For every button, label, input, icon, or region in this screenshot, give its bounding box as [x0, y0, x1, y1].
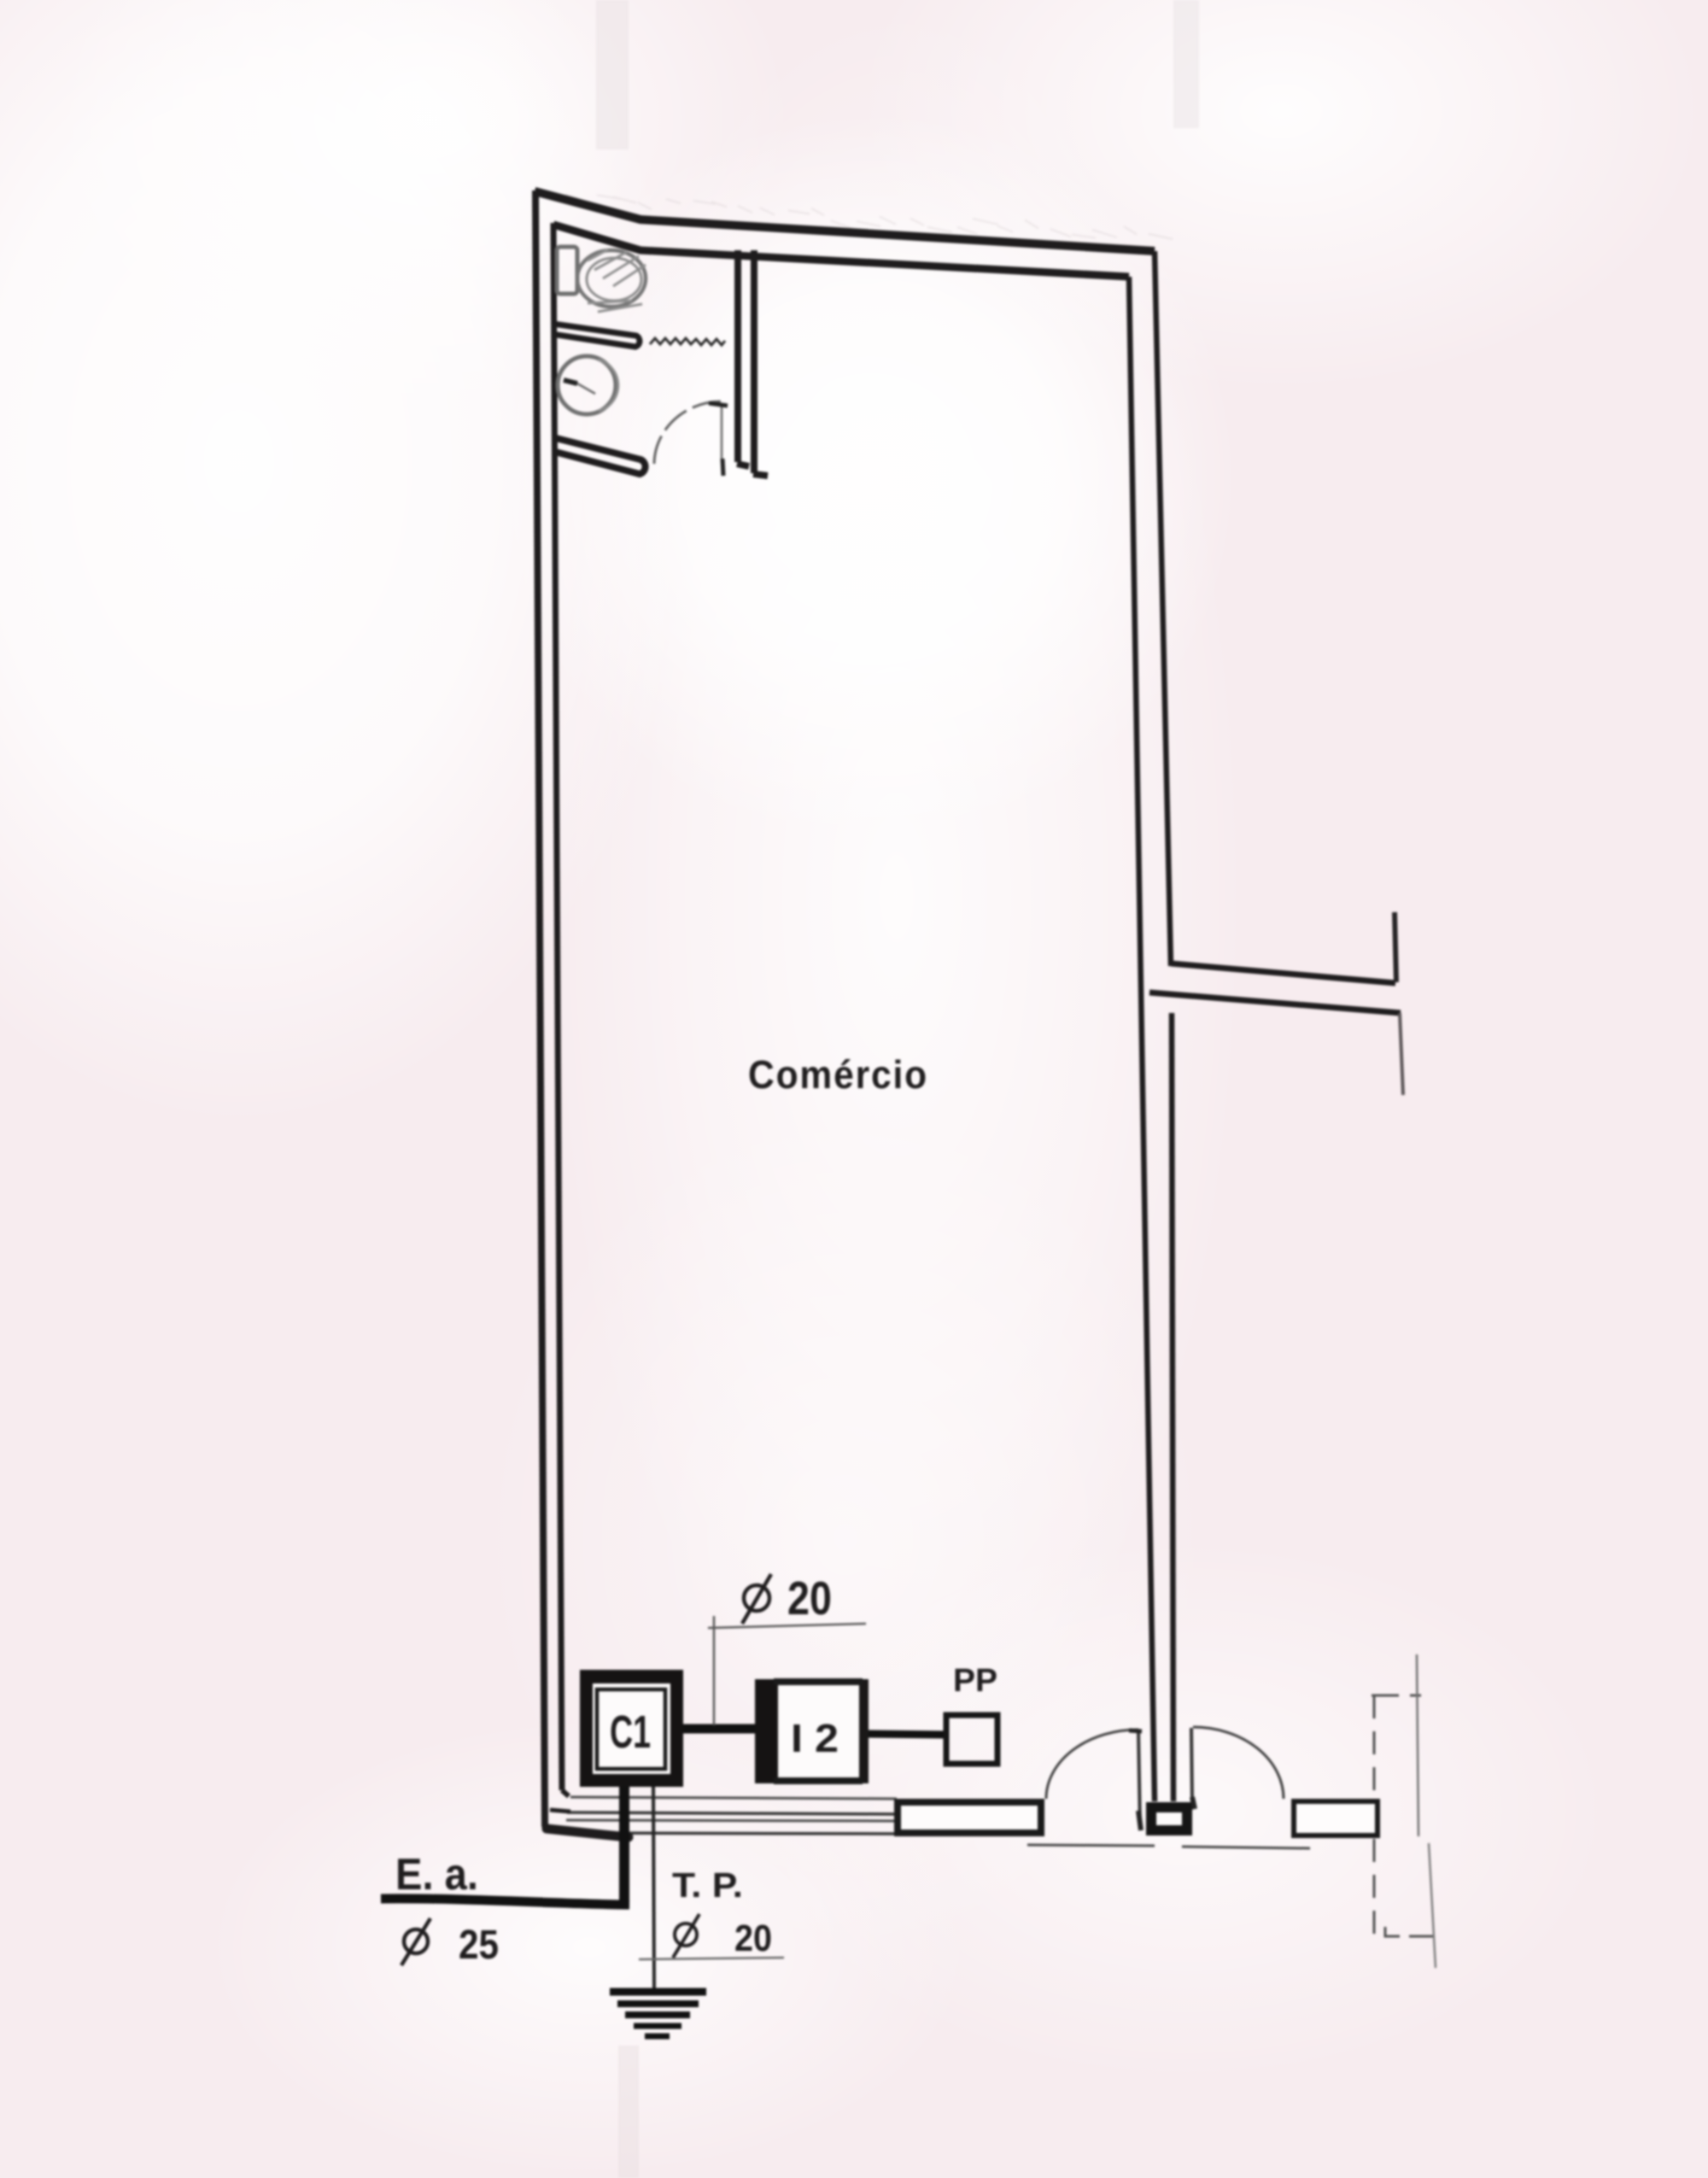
- svg-text:E. a.: E. a.: [395, 1850, 478, 1900]
- svg-text:PP: PP: [953, 1663, 997, 1699]
- svg-text:25: 25: [459, 1923, 499, 1968]
- svg-text:I 2: I 2: [791, 1716, 839, 1760]
- svg-text:20: 20: [734, 1917, 772, 1959]
- svg-text:20: 20: [787, 1572, 832, 1625]
- svg-text:T. P.: T. P.: [672, 1865, 743, 1905]
- svg-text:C1: C1: [610, 1707, 651, 1758]
- svg-text:Comércio: Comércio: [748, 1052, 928, 1097]
